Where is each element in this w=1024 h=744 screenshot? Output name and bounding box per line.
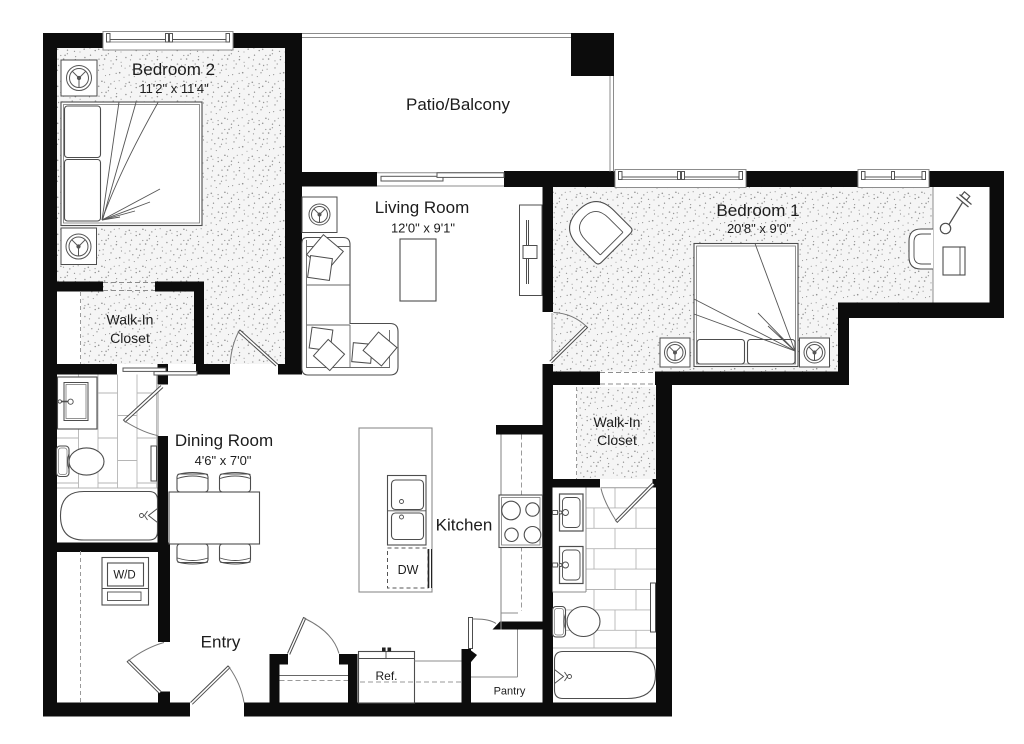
svg-text:W/D: W/D [113, 570, 135, 582]
svg-text:20'8" x 9'0": 20'8" x 9'0" [727, 221, 791, 236]
svg-text:4'6" x 7'0": 4'6" x 7'0" [195, 453, 252, 468]
svg-text:Patio/Balcony: Patio/Balcony [406, 95, 510, 114]
svg-text:Bedroom 1: Bedroom 1 [716, 201, 799, 220]
svg-text:Bedroom 2: Bedroom 2 [132, 60, 215, 79]
svg-text:Closet: Closet [110, 330, 150, 346]
svg-text:Walk-In: Walk-In [107, 312, 154, 328]
svg-text:11'2" x 11'4": 11'2" x 11'4" [139, 81, 209, 96]
svg-text:12'0" x 9'1": 12'0" x 9'1" [391, 221, 455, 236]
svg-text:Ref.: Ref. [375, 669, 397, 683]
svg-text:Entry: Entry [201, 633, 241, 652]
svg-text:Walk-In: Walk-In [594, 414, 641, 430]
svg-text:Closet: Closet [597, 432, 637, 448]
svg-text:DW: DW [398, 563, 419, 577]
svg-text:Kitchen: Kitchen [436, 516, 493, 535]
svg-text:Dining Room: Dining Room [175, 431, 273, 450]
svg-text:Pantry: Pantry [494, 686, 526, 698]
svg-text:Living Room: Living Room [375, 198, 470, 217]
